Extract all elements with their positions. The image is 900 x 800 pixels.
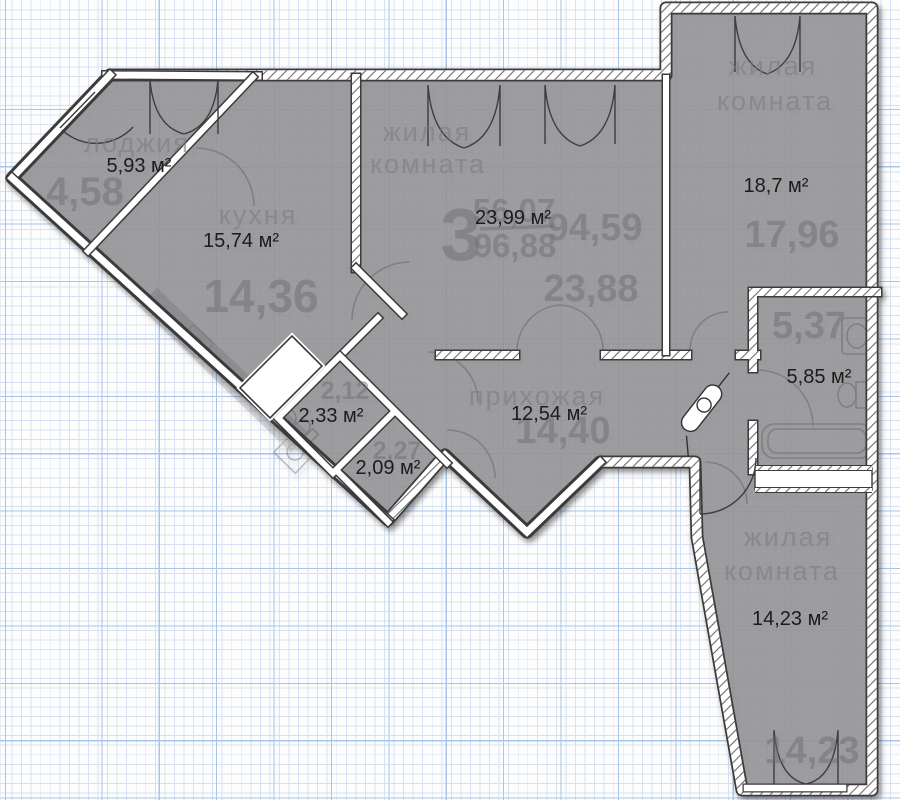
room-name-living-center-1: жилая xyxy=(383,117,472,147)
room-name-living-bottomright-1: жилая xyxy=(744,522,833,552)
area-label-bathroom: 5,85 м² xyxy=(787,366,852,388)
floor-plan-canvas: лоджия кухня жилая комната жилая комната… xyxy=(0,0,900,800)
room-name-kitchen: кухня xyxy=(219,200,298,230)
area-label-wc1: 2,33 м² xyxy=(299,405,364,427)
old-area-living-topright: 17,96 xyxy=(744,214,839,256)
room-name-living-center-2: комната xyxy=(370,149,486,179)
area-label-loggia: 5,93 м² xyxy=(107,155,172,177)
loggia-top-window xyxy=(106,75,258,76)
room-name-living-topright-2: комната xyxy=(717,86,833,116)
summary-area-side: 94,59 xyxy=(547,207,642,249)
area-label-living-bottomright: 14,23 м² xyxy=(752,608,828,630)
area-label-living-topright: 18,7 м² xyxy=(744,175,809,197)
old-area-kitchen: 14,36 xyxy=(203,270,318,322)
duct-band xyxy=(755,468,872,490)
area-label-living-center: 23,99 м² xyxy=(475,207,551,229)
area-label-hallway: 12,54 м² xyxy=(511,403,587,425)
old-area-living-center: 23,88 xyxy=(543,268,638,310)
area-label-wc2: 2,09 м² xyxy=(356,457,421,479)
old-area-living-bottomright: 14,23 xyxy=(764,730,859,772)
room-name-living-topright-1: жилая xyxy=(729,51,818,81)
summary-area-denominator: 96,88 xyxy=(474,227,557,264)
floor-plan: лоджия кухня жилая комната жилая комната… xyxy=(12,8,877,790)
old-area-wc1: 2,12 xyxy=(321,377,370,405)
room-name-loggia: лоджия xyxy=(84,128,190,158)
area-label-kitchen: 15,74 м² xyxy=(203,230,279,252)
room-name-living-bottomright-2: комната xyxy=(724,556,840,586)
old-area-bathroom: 5,37 xyxy=(772,305,846,347)
